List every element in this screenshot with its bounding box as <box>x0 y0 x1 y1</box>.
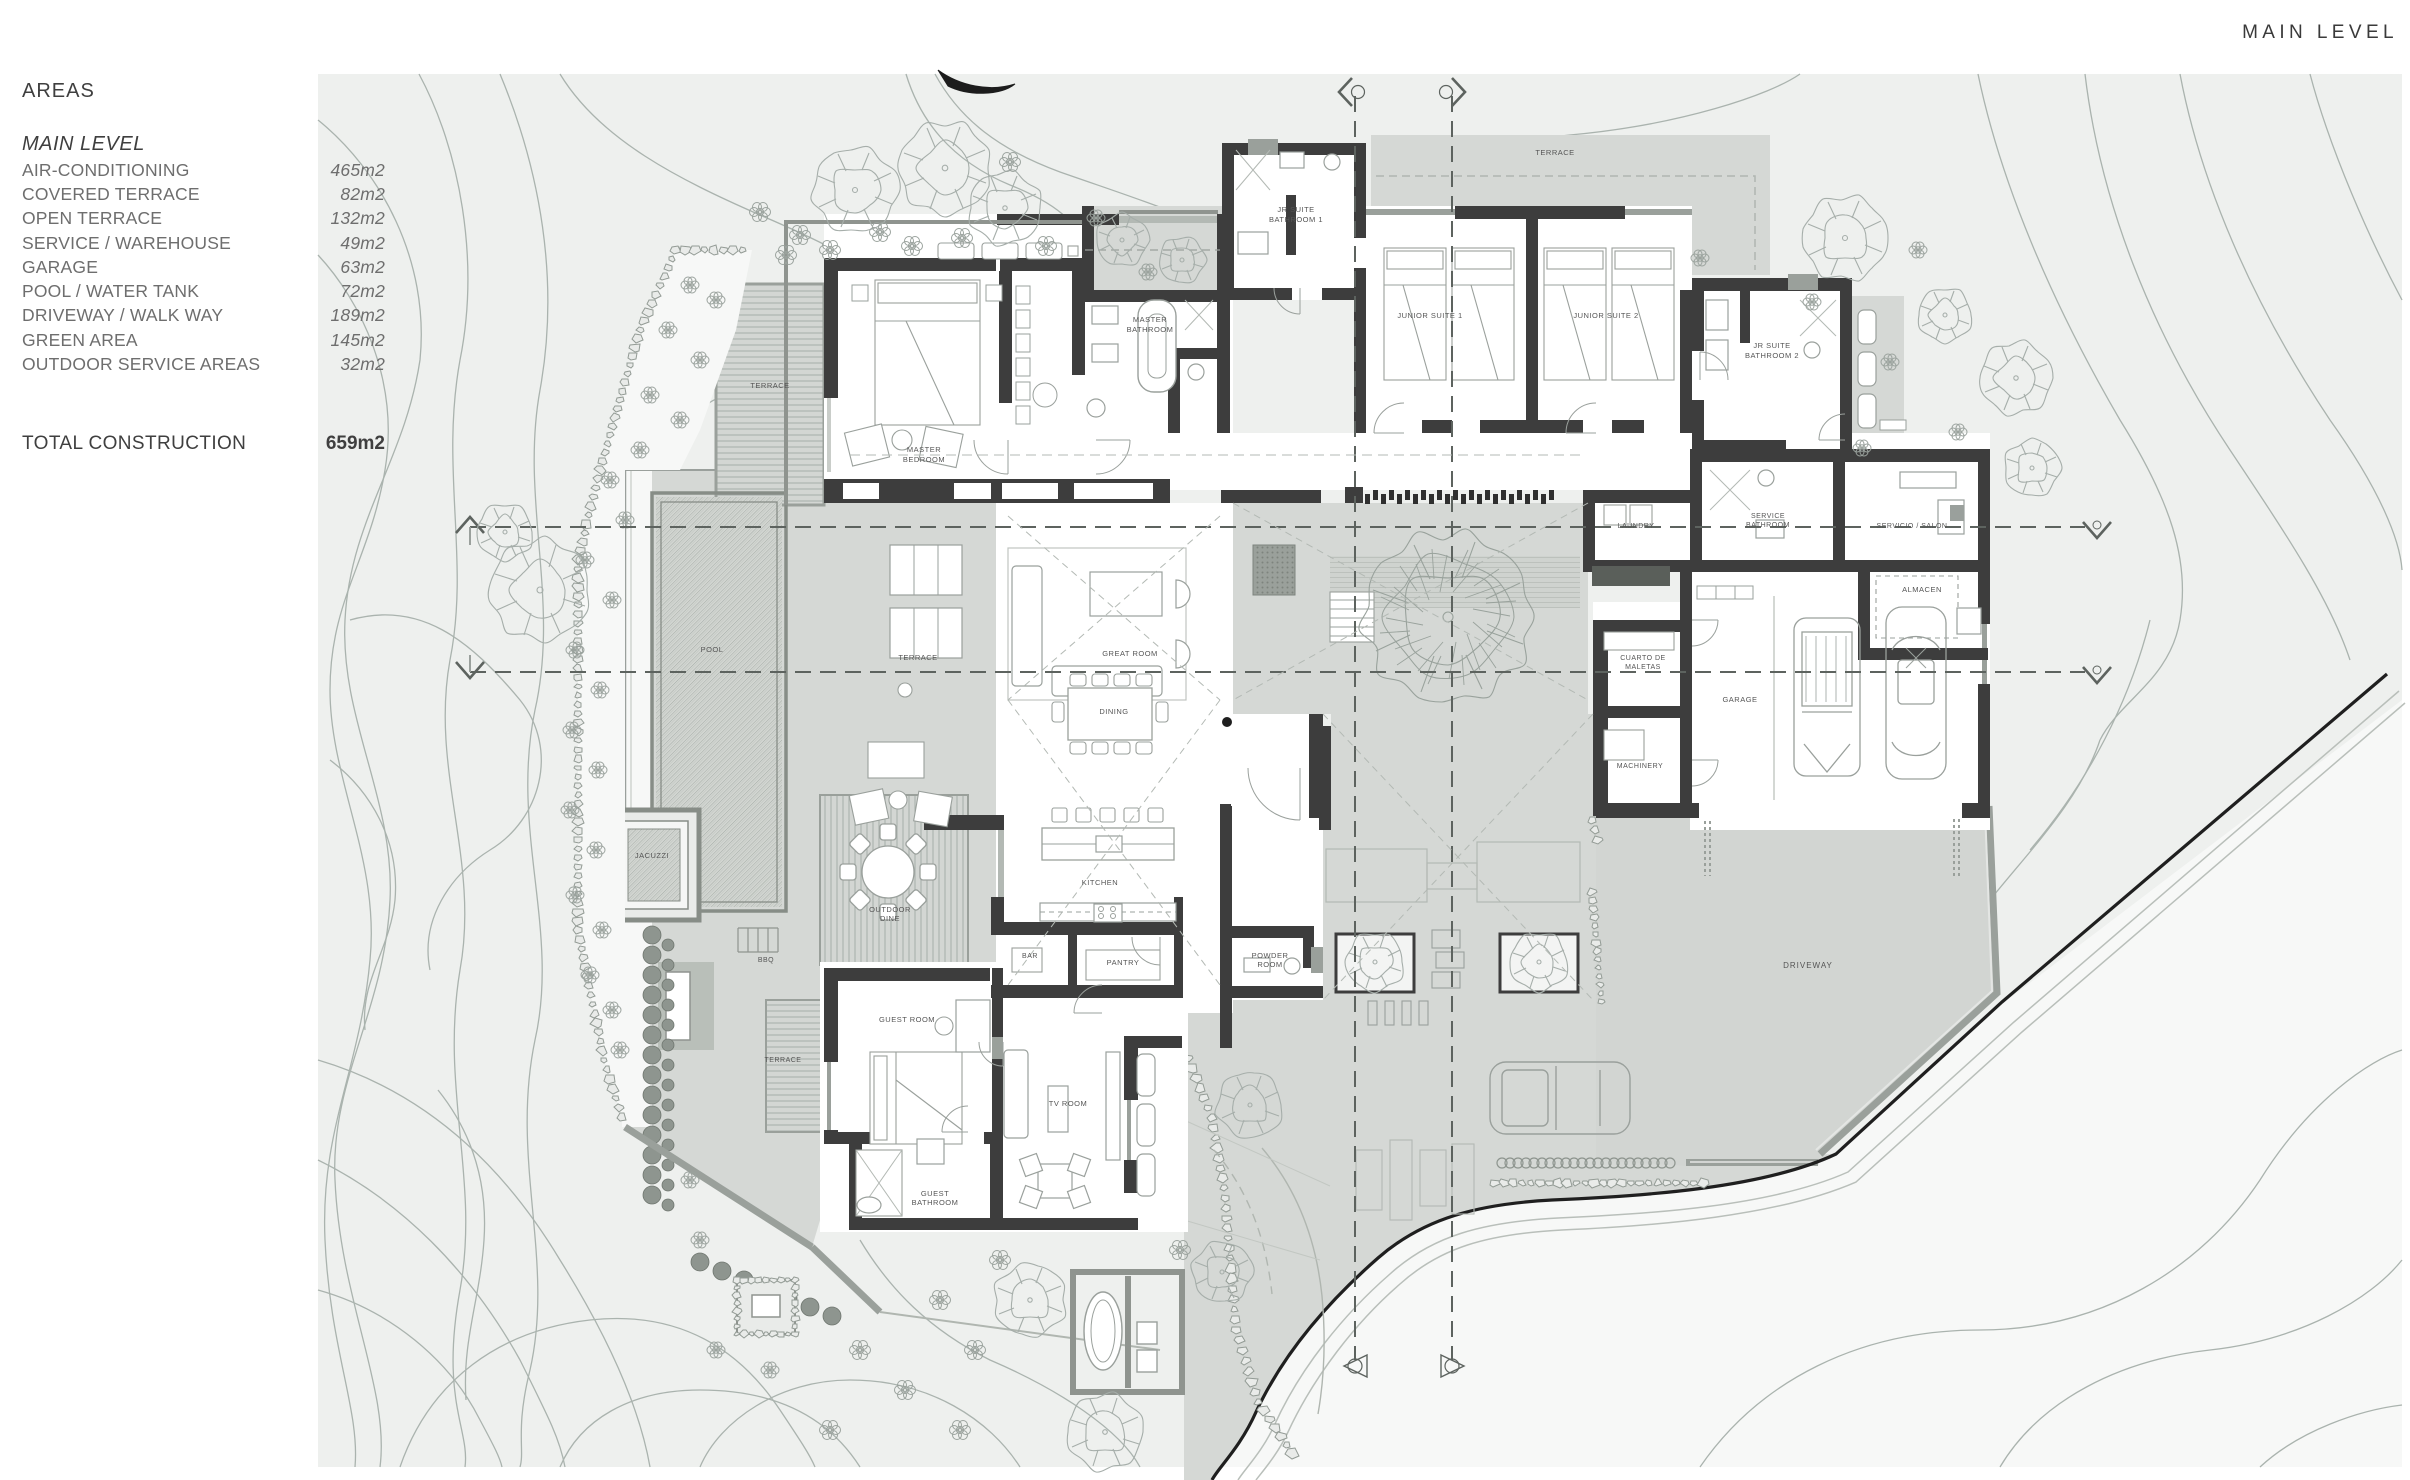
svg-text:465m2: 465m2 <box>330 160 385 180</box>
svg-text:ROOM: ROOM <box>1257 960 1282 969</box>
svg-text:BATHROOM: BATHROOM <box>1127 325 1174 334</box>
svg-text:GUEST ROOM: GUEST ROOM <box>879 1015 935 1024</box>
svg-text:GREEN AREA: GREEN AREA <box>22 330 138 350</box>
svg-text:TERRACE: TERRACE <box>765 1057 802 1064</box>
svg-text:TV ROOM: TV ROOM <box>1049 1099 1088 1108</box>
svg-text:GARAGE: GARAGE <box>1722 695 1757 704</box>
svg-text:MAIN LEVEL: MAIN LEVEL <box>2242 22 2398 43</box>
svg-text:TERRACE: TERRACE <box>750 381 789 390</box>
svg-text:ALMACEN: ALMACEN <box>1902 585 1942 594</box>
svg-text:JR SUITE: JR SUITE <box>1277 205 1314 214</box>
svg-text:BEDROOM: BEDROOM <box>903 455 945 464</box>
svg-text:POOL / WATER TANK: POOL / WATER TANK <box>22 281 199 301</box>
svg-text:GREAT ROOM: GREAT ROOM <box>1102 649 1158 658</box>
svg-text:189m2: 189m2 <box>330 305 385 325</box>
svg-text:OUTDOOR SERVICE AREAS: OUTDOOR SERVICE AREAS <box>22 354 260 374</box>
svg-text:OUTDOOR: OUTDOOR <box>869 905 911 914</box>
svg-text:GUEST: GUEST <box>921 1189 949 1198</box>
svg-text:CUARTO DE: CUARTO DE <box>1620 655 1665 662</box>
svg-text:SERVICE: SERVICE <box>1751 513 1785 520</box>
svg-text:JUNIOR SUITE 1: JUNIOR SUITE 1 <box>1397 311 1462 320</box>
svg-text:DRIVEWAY / WALK WAY: DRIVEWAY / WALK WAY <box>22 305 223 325</box>
svg-text:OPEN TERRACE: OPEN TERRACE <box>22 208 162 228</box>
svg-text:GARAGE: GARAGE <box>22 257 98 277</box>
svg-text:SERVICIO / SALON: SERVICIO / SALON <box>1877 523 1948 530</box>
svg-text:KITCHEN: KITCHEN <box>1082 878 1118 887</box>
svg-text:MASTER: MASTER <box>907 445 941 454</box>
svg-text:JUNIOR SUITE 2: JUNIOR SUITE 2 <box>1573 311 1638 320</box>
svg-text:DINING: DINING <box>1099 707 1128 716</box>
svg-text:TERRACE: TERRACE <box>1535 148 1574 157</box>
svg-text:SERVICE / WAREHOUSE: SERVICE / WAREHOUSE <box>22 233 231 253</box>
svg-text:DRIVEWAY: DRIVEWAY <box>1783 961 1833 970</box>
svg-text:63m2: 63m2 <box>340 257 385 277</box>
svg-text:MACHINERY: MACHINERY <box>1617 763 1663 770</box>
svg-text:BATHROOM 1: BATHROOM 1 <box>1269 215 1323 224</box>
svg-text:MAIN LEVEL: MAIN LEVEL <box>22 133 145 155</box>
svg-text:AREAS: AREAS <box>22 80 95 102</box>
svg-text:MASTER: MASTER <box>1133 315 1167 324</box>
svg-text:BAR: BAR <box>1022 953 1038 960</box>
svg-text:MALETAS: MALETAS <box>1625 664 1661 671</box>
svg-text:PANTRY: PANTRY <box>1107 958 1140 967</box>
svg-text:AIR-CONDITIONING: AIR-CONDITIONING <box>22 160 190 180</box>
svg-text:POOL: POOL <box>701 645 724 654</box>
svg-text:49m2: 49m2 <box>340 233 385 253</box>
svg-text:145m2: 145m2 <box>330 330 385 350</box>
svg-text:BATHROOM 2: BATHROOM 2 <box>1745 351 1799 360</box>
svg-text:LAUNDRY: LAUNDRY <box>1618 523 1655 530</box>
svg-text:82m2: 82m2 <box>340 184 385 204</box>
svg-text:TOTAL CONSTRUCTION: TOTAL CONSTRUCTION <box>22 433 246 454</box>
svg-text:72m2: 72m2 <box>340 281 385 301</box>
svg-text:659m2: 659m2 <box>326 433 385 454</box>
svg-text:BBQ: BBQ <box>758 957 774 964</box>
svg-text:32m2: 32m2 <box>340 354 385 374</box>
svg-text:132m2: 132m2 <box>330 208 385 228</box>
svg-text:POWDER: POWDER <box>1252 951 1289 960</box>
svg-text:COVERED TERRACE: COVERED TERRACE <box>22 184 200 204</box>
svg-text:DINE: DINE <box>880 914 900 923</box>
svg-text:TERRACE: TERRACE <box>898 653 937 662</box>
svg-text:JR SUITE: JR SUITE <box>1753 341 1790 350</box>
svg-text:BATHROOM: BATHROOM <box>912 1198 959 1207</box>
svg-text:BATHROOM: BATHROOM <box>1746 522 1790 529</box>
svg-text:JACUZZI: JACUZZI <box>635 851 669 860</box>
